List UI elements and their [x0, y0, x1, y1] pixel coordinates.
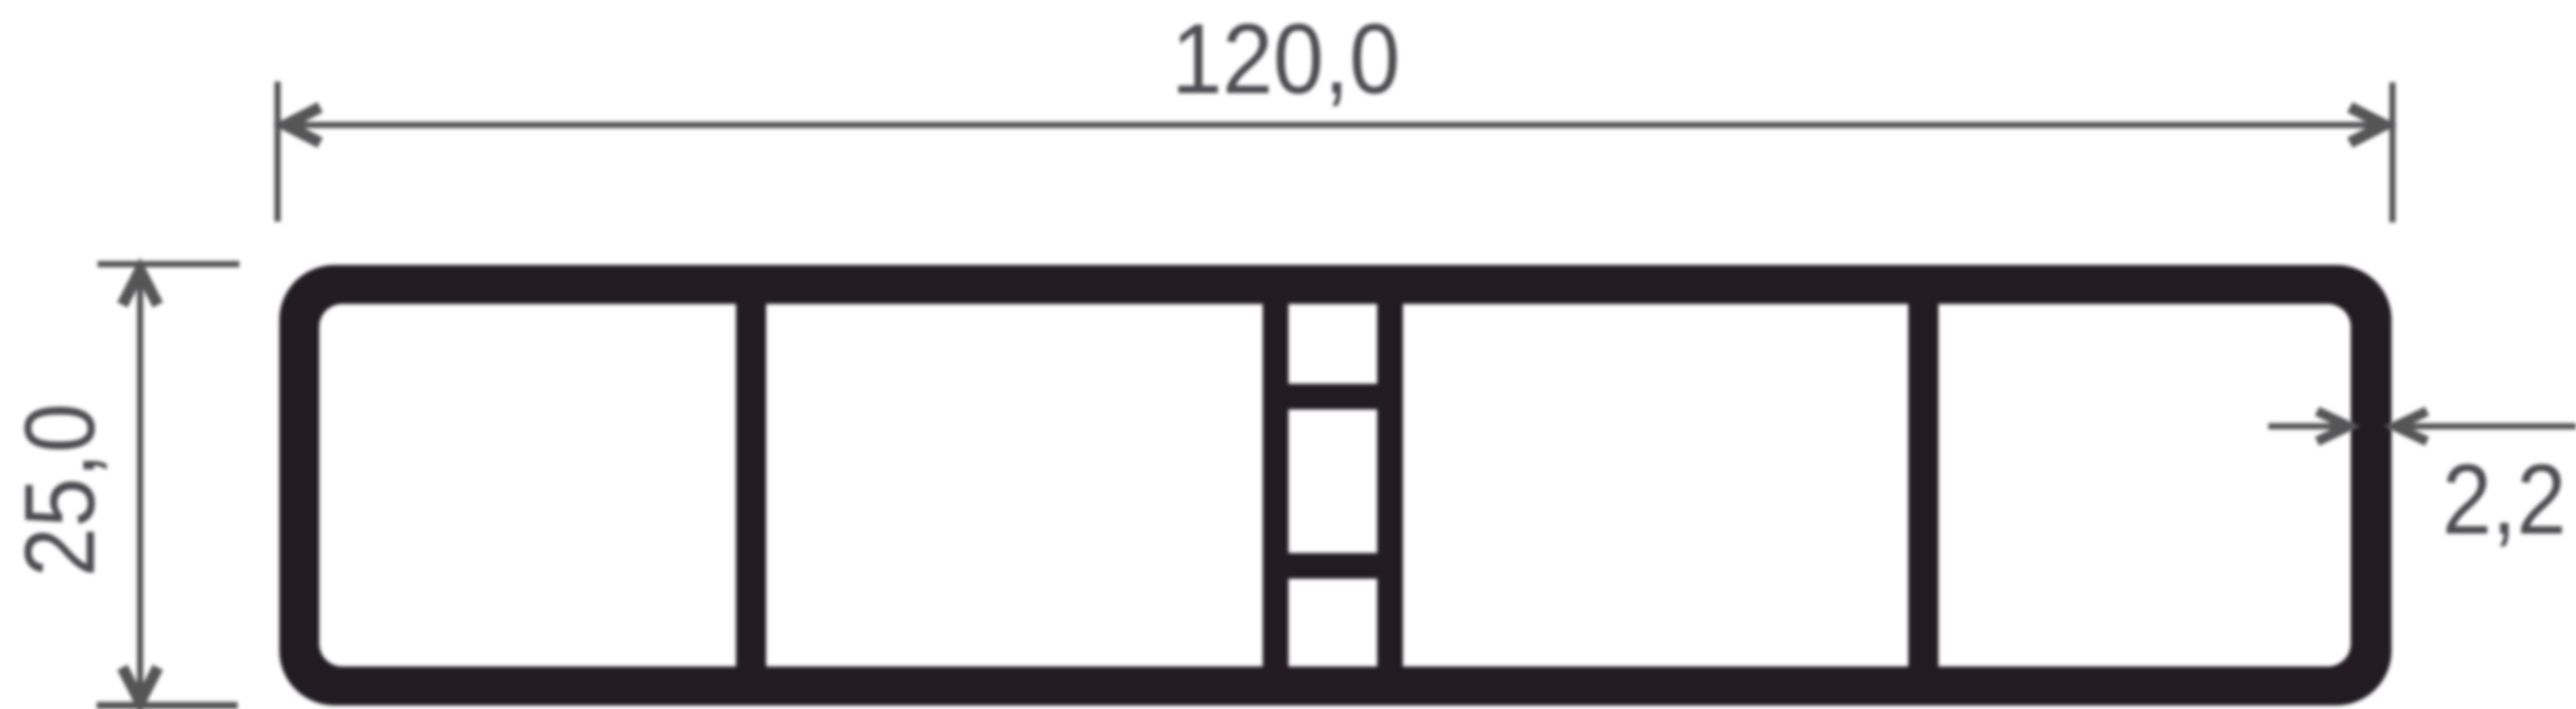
- svg-text:120,0: 120,0: [1171, 4, 1400, 114]
- svg-text:2,2: 2,2: [2442, 444, 2566, 555]
- svg-text:25,0: 25,0: [4, 403, 115, 577]
